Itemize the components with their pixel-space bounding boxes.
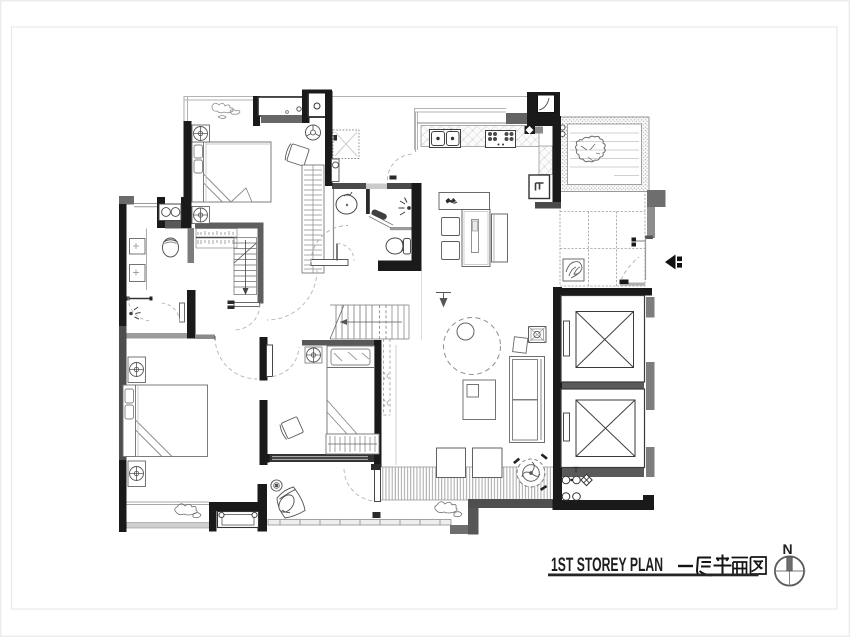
svg-text:1ST STOREY PLAN: 1ST STOREY PLAN <box>551 554 663 576</box>
svg-text:N: N <box>783 541 793 557</box>
